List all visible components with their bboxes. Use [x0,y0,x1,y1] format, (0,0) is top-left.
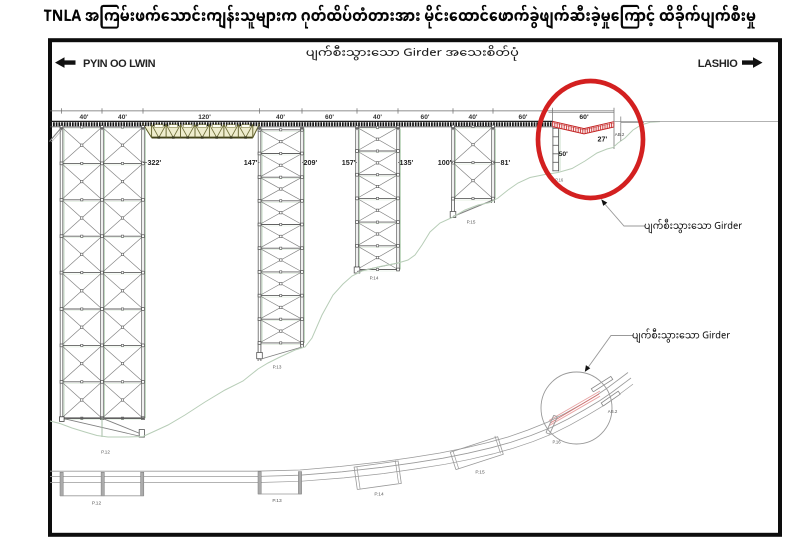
svg-text:27': 27' [598,134,608,143]
svg-text:322': 322' [148,158,162,167]
svg-text:81': 81' [501,158,511,167]
svg-text:P.13: P.13 [273,365,282,370]
svg-text:P.14: P.14 [370,276,379,281]
svg-text:209': 209' [304,158,318,167]
svg-text:P.13: P.13 [272,498,282,504]
svg-text:AB.2: AB.2 [615,132,625,137]
svg-text:60': 60' [421,114,430,121]
svg-text:40': 40' [469,114,478,121]
svg-text:40': 40' [80,114,89,121]
svg-text:135': 135' [400,158,414,167]
svg-text:40': 40' [276,114,285,121]
svg-text:P.12: P.12 [92,501,102,507]
svg-text:P.14: P.14 [374,491,384,497]
svg-text:157': 157' [342,158,356,167]
svg-text:AB.2: AB.2 [608,409,618,414]
svg-text:60': 60' [579,114,589,121]
svg-text:PYIN OO LWIN: PYIN OO LWIN [83,58,156,70]
svg-text:60': 60' [519,114,528,121]
svg-text:P.15: P.15 [467,220,476,225]
svg-text:100': 100' [438,158,452,167]
svg-text:120': 120' [198,114,211,121]
svg-text:60': 60' [325,114,334,121]
svg-text:40': 40' [373,114,382,121]
svg-text:LASHIO: LASHIO [698,58,739,70]
svg-text:P.15: P.15 [475,469,485,475]
svg-text:147': 147' [244,158,258,167]
svg-text:P.12: P.12 [101,450,110,455]
svg-text:50': 50' [559,151,569,158]
svg-text:40': 40' [118,114,127,121]
